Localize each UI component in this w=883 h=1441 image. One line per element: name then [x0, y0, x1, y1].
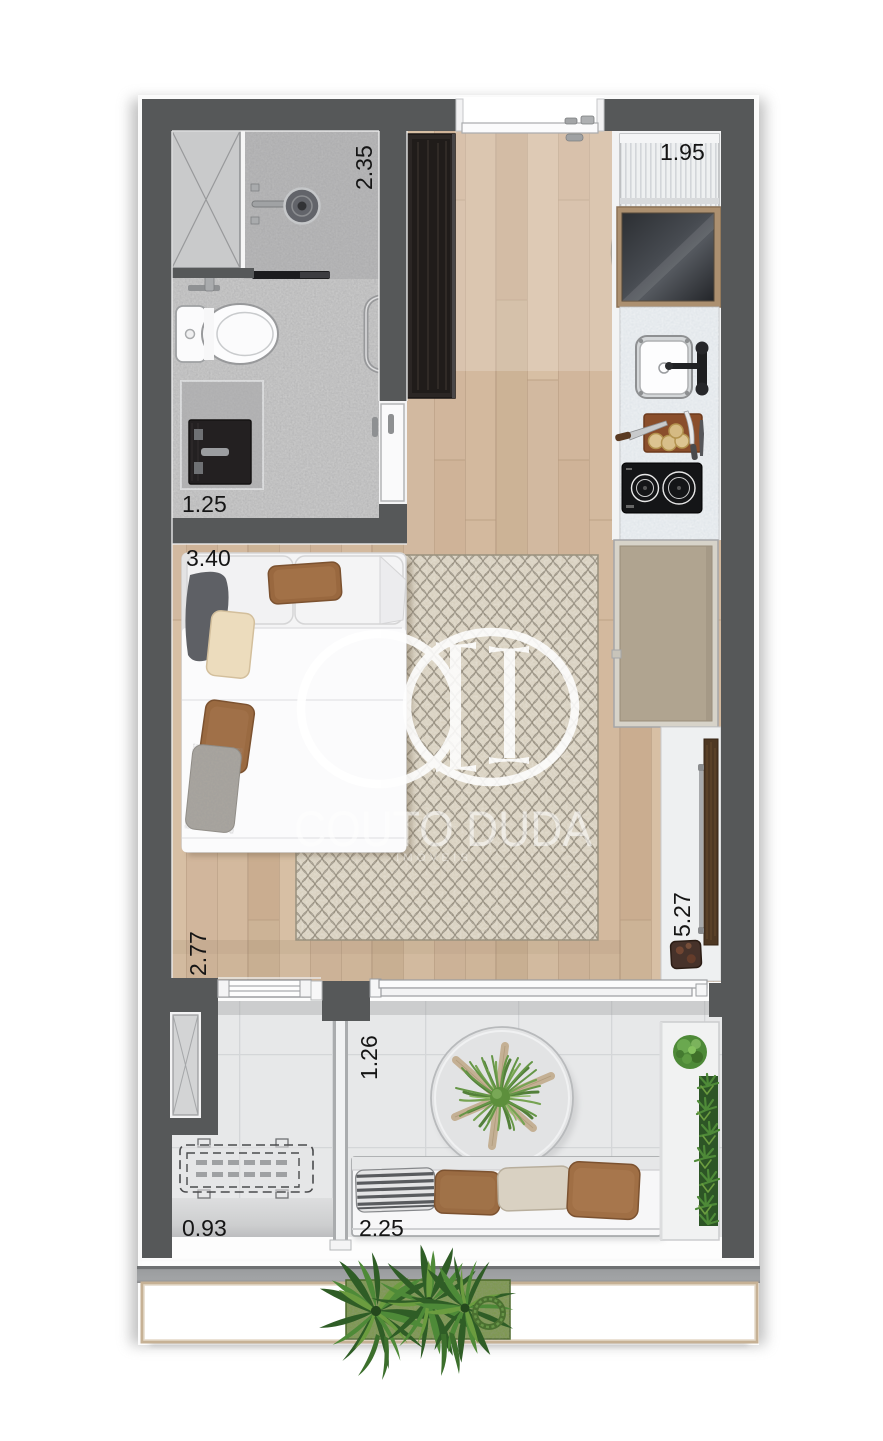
svg-text:IMÓVEIS: IMÓVEIS: [396, 851, 472, 864]
svg-text:COUTO DUDA: COUTO DUDA: [294, 801, 593, 857]
svg-text:2.35: 2.35: [351, 145, 377, 190]
svg-text:2.25: 2.25: [359, 1215, 404, 1241]
svg-text:3.40: 3.40: [186, 545, 231, 571]
svg-text:1.95: 1.95: [660, 139, 705, 165]
svg-text:1.26: 1.26: [356, 1035, 382, 1080]
svg-text:0.93: 0.93: [182, 1215, 227, 1241]
svg-text:2.77: 2.77: [185, 931, 211, 976]
svg-text:5.27: 5.27: [669, 892, 695, 937]
svg-text:1.25: 1.25: [182, 491, 227, 517]
